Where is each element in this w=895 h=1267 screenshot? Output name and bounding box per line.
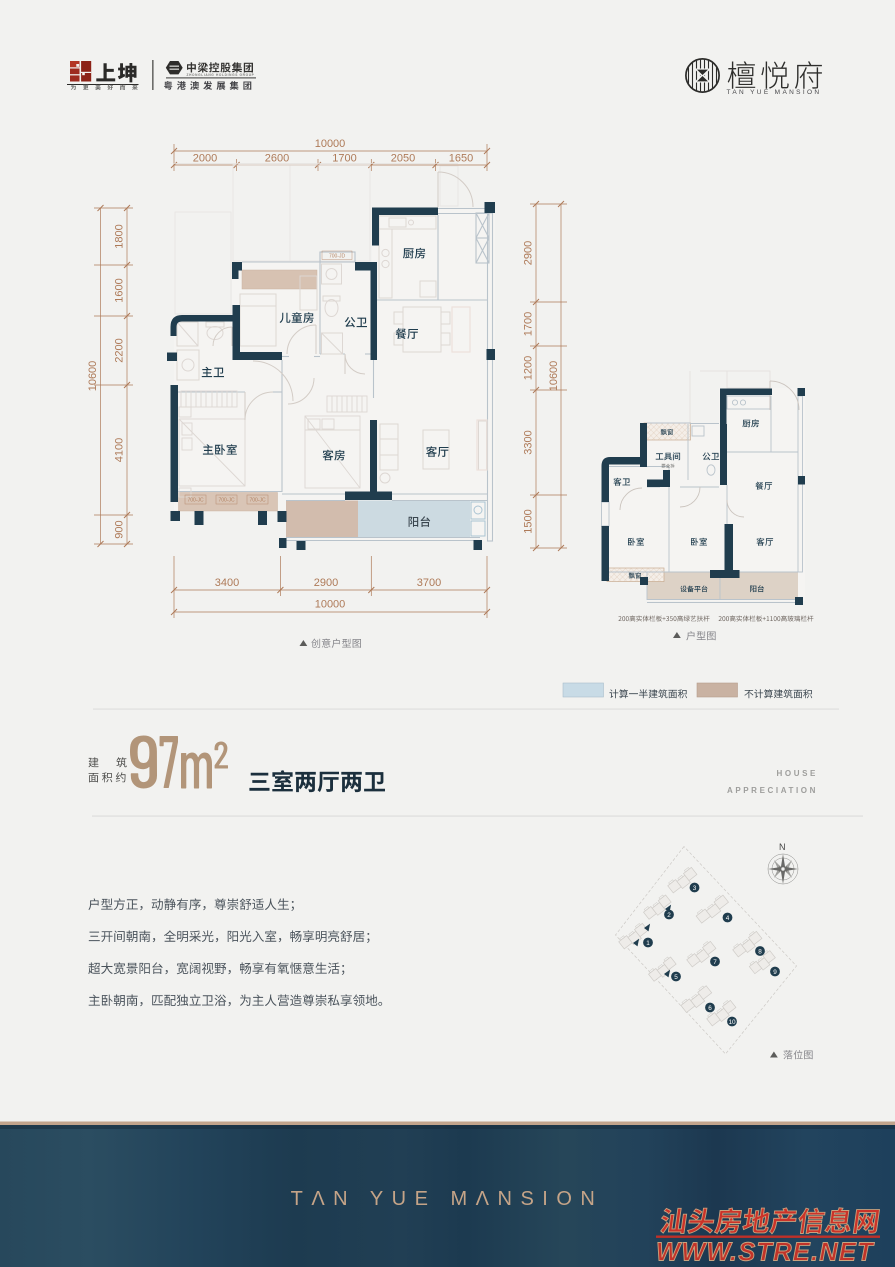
svg-text:HOUSE: HOUSE [777,769,818,778]
svg-text:10000: 10000 [315,599,346,611]
svg-text:TAN YUE MANSION: TAN YUE MANSION [727,89,822,96]
svg-text:1800: 1800 [114,224,126,248]
svg-text:3700: 3700 [417,577,441,589]
svg-text:WWW.STRE.NET: WWW.STRE.NET [656,1239,875,1267]
svg-text:1650: 1650 [449,153,473,165]
svg-text:700-JC: 700-JC [249,498,266,504]
svg-text:2600: 2600 [265,153,289,165]
svg-text:2000: 2000 [193,153,217,165]
svg-text:2: 2 [667,912,671,919]
svg-text:3400: 3400 [215,577,239,589]
svg-text:2900: 2900 [314,577,338,589]
svg-text:8: 8 [758,948,762,955]
svg-text:1700: 1700 [523,312,535,336]
svg-text:1200: 1200 [523,356,535,380]
svg-text:7: 7 [713,959,717,966]
svg-text:2900: 2900 [523,241,535,265]
svg-text:APPRECIATION: APPRECIATION [727,786,818,795]
svg-text:700-JD: 700-JD [329,254,346,260]
svg-text:6: 6 [708,1005,712,1012]
svg-text:10000: 10000 [315,138,346,150]
svg-text:900: 900 [114,520,126,538]
svg-text:ZHONGLIANG HOLDINGS GROUP: ZHONGLIANG HOLDINGS GROUP [187,73,255,77]
svg-text:4: 4 [726,915,730,922]
svg-text:1500: 1500 [523,509,535,533]
svg-text:TΛN YUE MΛNSION: TΛN YUE MΛNSION [291,1188,604,1210]
svg-text:700-JC: 700-JC [187,498,204,504]
svg-text:1700: 1700 [332,153,356,165]
svg-text:5: 5 [674,974,678,981]
svg-text:10600: 10600 [87,361,99,392]
svg-text:9: 9 [773,969,777,976]
svg-text:1: 1 [646,940,650,947]
svg-text:10600: 10600 [548,361,560,392]
svg-text:10: 10 [728,1019,736,1026]
svg-text:3300: 3300 [523,430,535,454]
svg-text:2050: 2050 [391,153,415,165]
svg-text:1600: 1600 [114,278,126,302]
svg-text:2200: 2200 [114,338,126,362]
svg-text:700-JC: 700-JC [218,498,235,504]
svg-text:N: N [779,842,786,852]
svg-text:3: 3 [693,885,697,892]
svg-text:4100: 4100 [114,438,126,462]
